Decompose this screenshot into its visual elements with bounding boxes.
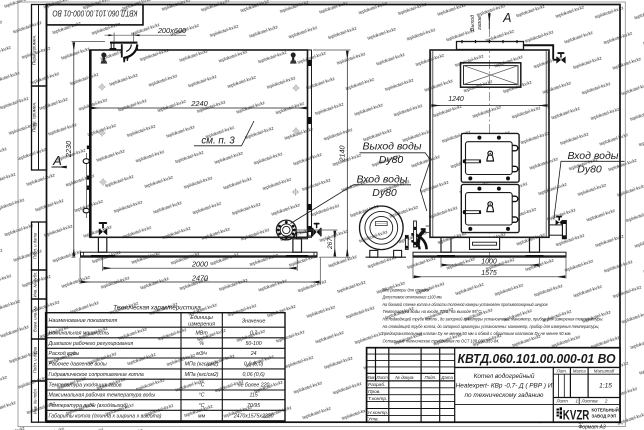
- svg-text:КВТД.060.101.00.000-01 ВО: КВТД.060.101.00.000-01 ВО: [52, 8, 137, 18]
- svg-text:KVZR: KVZR: [563, 408, 590, 423]
- svg-text:Допустимое отклонение ±100 мм: Допустимое отклонение ±100 мм.: [382, 295, 443, 300]
- svg-text:Номинальная мощность: Номинальная мощность: [49, 331, 110, 337]
- svg-text:°С: °С: [199, 393, 205, 399]
- svg-text:Разраб.: Разраб.: [368, 382, 385, 388]
- svg-text:Лист: Лист: [375, 375, 388, 380]
- svg-text:Масштаб: Масштаб: [594, 369, 615, 374]
- svg-text:Перв. примен.: Перв. примен.: [31, 35, 36, 66]
- svg-text:Температура уходящих газов: Температура уходящих газов: [49, 383, 122, 389]
- svg-text:Лит.: Лит.: [556, 369, 567, 374]
- svg-text:КВТД.060.101.00.000-01 ВО: КВТД.060.101.00.000-01 ВО: [458, 351, 617, 366]
- svg-text:70/95: 70/95: [247, 403, 260, 409]
- svg-text:1000: 1000: [481, 258, 497, 265]
- svg-text:не более 220: не более 220: [238, 383, 270, 389]
- svg-text:см. п. 3: см. п. 3: [201, 136, 235, 147]
- svg-text:А: А: [502, 11, 511, 25]
- svg-text:Н.контр.: Н.контр.: [368, 410, 388, 416]
- svg-text:24: 24: [250, 351, 257, 357]
- svg-text:Выход: Выход: [470, 15, 476, 31]
- svg-text:Heatexpert- КВр -0,7- Д ( РВР: Heatexpert- КВр -0,7- Д ( РВР ) И: [456, 382, 553, 389]
- svg-text:1575: 1575: [481, 270, 497, 277]
- svg-text:№ докум.: № докум.: [395, 375, 414, 380]
- svg-text:Изм.: Изм.: [366, 375, 375, 380]
- svg-text:МПа (кгс/см2): МПа (кгс/см2): [185, 362, 219, 368]
- svg-text:Формат А3: Формат А3: [578, 424, 606, 430]
- svg-text:измерения: измерения: [188, 322, 215, 328]
- svg-text:Все размеры для справок: Все размеры для справок: [383, 288, 431, 293]
- svg-text:Подп. и дата: Подп. и дата: [32, 346, 37, 373]
- svg-text:Температура воды (вход/выход): Температура воды (вход/выход): [49, 403, 128, 409]
- svg-text:200х600: 200х600: [157, 26, 187, 35]
- svg-text:Габариты котла (длинна х ширин: Габариты котла (длинна х ширина х высота…: [49, 414, 162, 420]
- svg-text:Котел водогрейный: Котел водогрейный: [474, 372, 535, 380]
- svg-text:Выход воды: Выход воды: [362, 141, 421, 153]
- svg-text:Гидравлическое сопротивление к: Гидравлическое сопротивление котла: [49, 372, 144, 378]
- svg-text:Подп.: Подп.: [425, 375, 437, 380]
- svg-text:2140: 2140: [337, 146, 346, 163]
- svg-text:МПа (кгс/см2): МПа (кгс/см2): [185, 372, 219, 378]
- svg-text:Дата: Дата: [440, 375, 453, 380]
- svg-text:по техническому заданию: по техническому заданию: [465, 391, 544, 399]
- svg-text:газов: газов: [477, 16, 483, 30]
- svg-text:мм: мм: [198, 414, 206, 420]
- svg-text:Расход воды: Расход воды: [49, 351, 80, 357]
- svg-text:Вход воды: Вход воды: [568, 150, 619, 162]
- svg-text:Инв. № подл.: Инв. № подл.: [32, 388, 37, 414]
- svg-text:°С: °С: [199, 383, 205, 389]
- svg-text:%: %: [199, 341, 204, 347]
- svg-text:На отводящей трубе котла, до з: На отводящей трубе котла, до запорной ар…: [383, 324, 600, 329]
- svg-text:2470х1575х2230: 2470х1575х2230: [233, 414, 274, 420]
- svg-text:2240: 2240: [190, 99, 208, 108]
- svg-text:На боковой стенке котла в обла: На боковой стенке котла в области топочн…: [383, 302, 549, 307]
- svg-text:2000: 2000: [191, 260, 208, 269]
- svg-text:Взам. инв. №: Взам. инв. №: [32, 306, 37, 332]
- svg-text:Т.контр.: Т.контр.: [368, 396, 387, 402]
- svg-text:Вход воды: Вход воды: [357, 174, 408, 186]
- svg-text:Dy80: Dy80: [577, 164, 602, 176]
- svg-text:°С: °С: [199, 403, 205, 409]
- svg-text:Масса: Масса: [573, 369, 587, 374]
- svg-text:0,06 (0,6): 0,06 (0,6): [242, 372, 264, 378]
- svg-text:Листов: Листов: [581, 399, 599, 404]
- svg-text:Диапазон рабочего регулировани: Диапазон рабочего регулирования: [48, 341, 134, 347]
- svg-text:50-100: 50-100: [246, 341, 262, 347]
- svg-text:Единицы: Единицы: [190, 315, 213, 321]
- svg-text:Максимальная рабочая температу: Максимальная рабочая температура воды: [49, 393, 156, 399]
- svg-text:2230: 2230: [64, 140, 73, 158]
- svg-text:предохранительный клапан Dу н: предохранительный клапан Dу не менее 50 …: [383, 331, 572, 336]
- svg-text:Dy80: Dy80: [372, 187, 397, 199]
- svg-text:1:15: 1:15: [599, 383, 612, 390]
- svg-text:МВт: МВт: [196, 331, 209, 337]
- svg-text:Инв. № дубл.: Инв. № дубл.: [32, 272, 37, 298]
- svg-text:Температура воды на входе 70°: Температура воды на входе 70°С, на выход…: [383, 309, 483, 314]
- svg-text:Подп. и дата: Подп. и дата: [32, 232, 37, 259]
- svg-text:Dy80: Dy80: [379, 154, 404, 166]
- svg-text:Техническая характеристика: Техническая характеристика: [113, 305, 201, 312]
- svg-text:Рабочее давление воды: Рабочее давление воды: [49, 362, 107, 368]
- svg-text:А: А: [52, 153, 62, 168]
- svg-text:Перв. примен.: Перв. примен.: [31, 102, 36, 133]
- svg-text:267: 267: [327, 238, 334, 250]
- svg-text:2: 2: [604, 399, 608, 404]
- svg-text:115: 115: [249, 393, 257, 399]
- svg-text:Утв.: Утв.: [368, 417, 379, 423]
- svg-text:КОТЕЛЬНЫЙ: КОТЕЛЬНЫЙ: [592, 408, 619, 413]
- svg-text:0,6 (6,0): 0,6 (6,0): [244, 362, 264, 368]
- svg-text:Пров.: Пров.: [368, 389, 381, 395]
- svg-text:На подводящей трубе котла ,: На подводящей трубе котла , до запорной …: [383, 317, 604, 322]
- svg-text:1240: 1240: [448, 96, 464, 103]
- svg-text:ЗАВОД РЭП: ЗАВОД РЭП: [592, 414, 617, 419]
- svg-text:Лист: Лист: [556, 399, 569, 404]
- svg-text:Наименование показателя: Наименование показателя: [49, 318, 118, 324]
- svg-text:Значение: Значение: [242, 319, 266, 325]
- svg-text:2470: 2470: [191, 273, 208, 282]
- svg-text:Остальные технические требован: Остальные технические требования по ОСТ …: [383, 338, 500, 343]
- svg-text:0,7: 0,7: [250, 331, 258, 337]
- svg-text:м3/ч: м3/ч: [196, 351, 207, 357]
